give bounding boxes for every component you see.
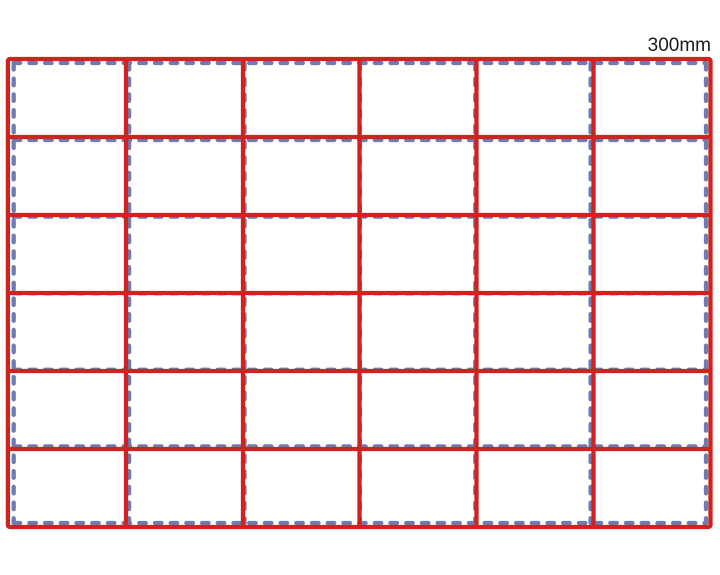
svg-text:300mm: 300mm (648, 35, 711, 56)
